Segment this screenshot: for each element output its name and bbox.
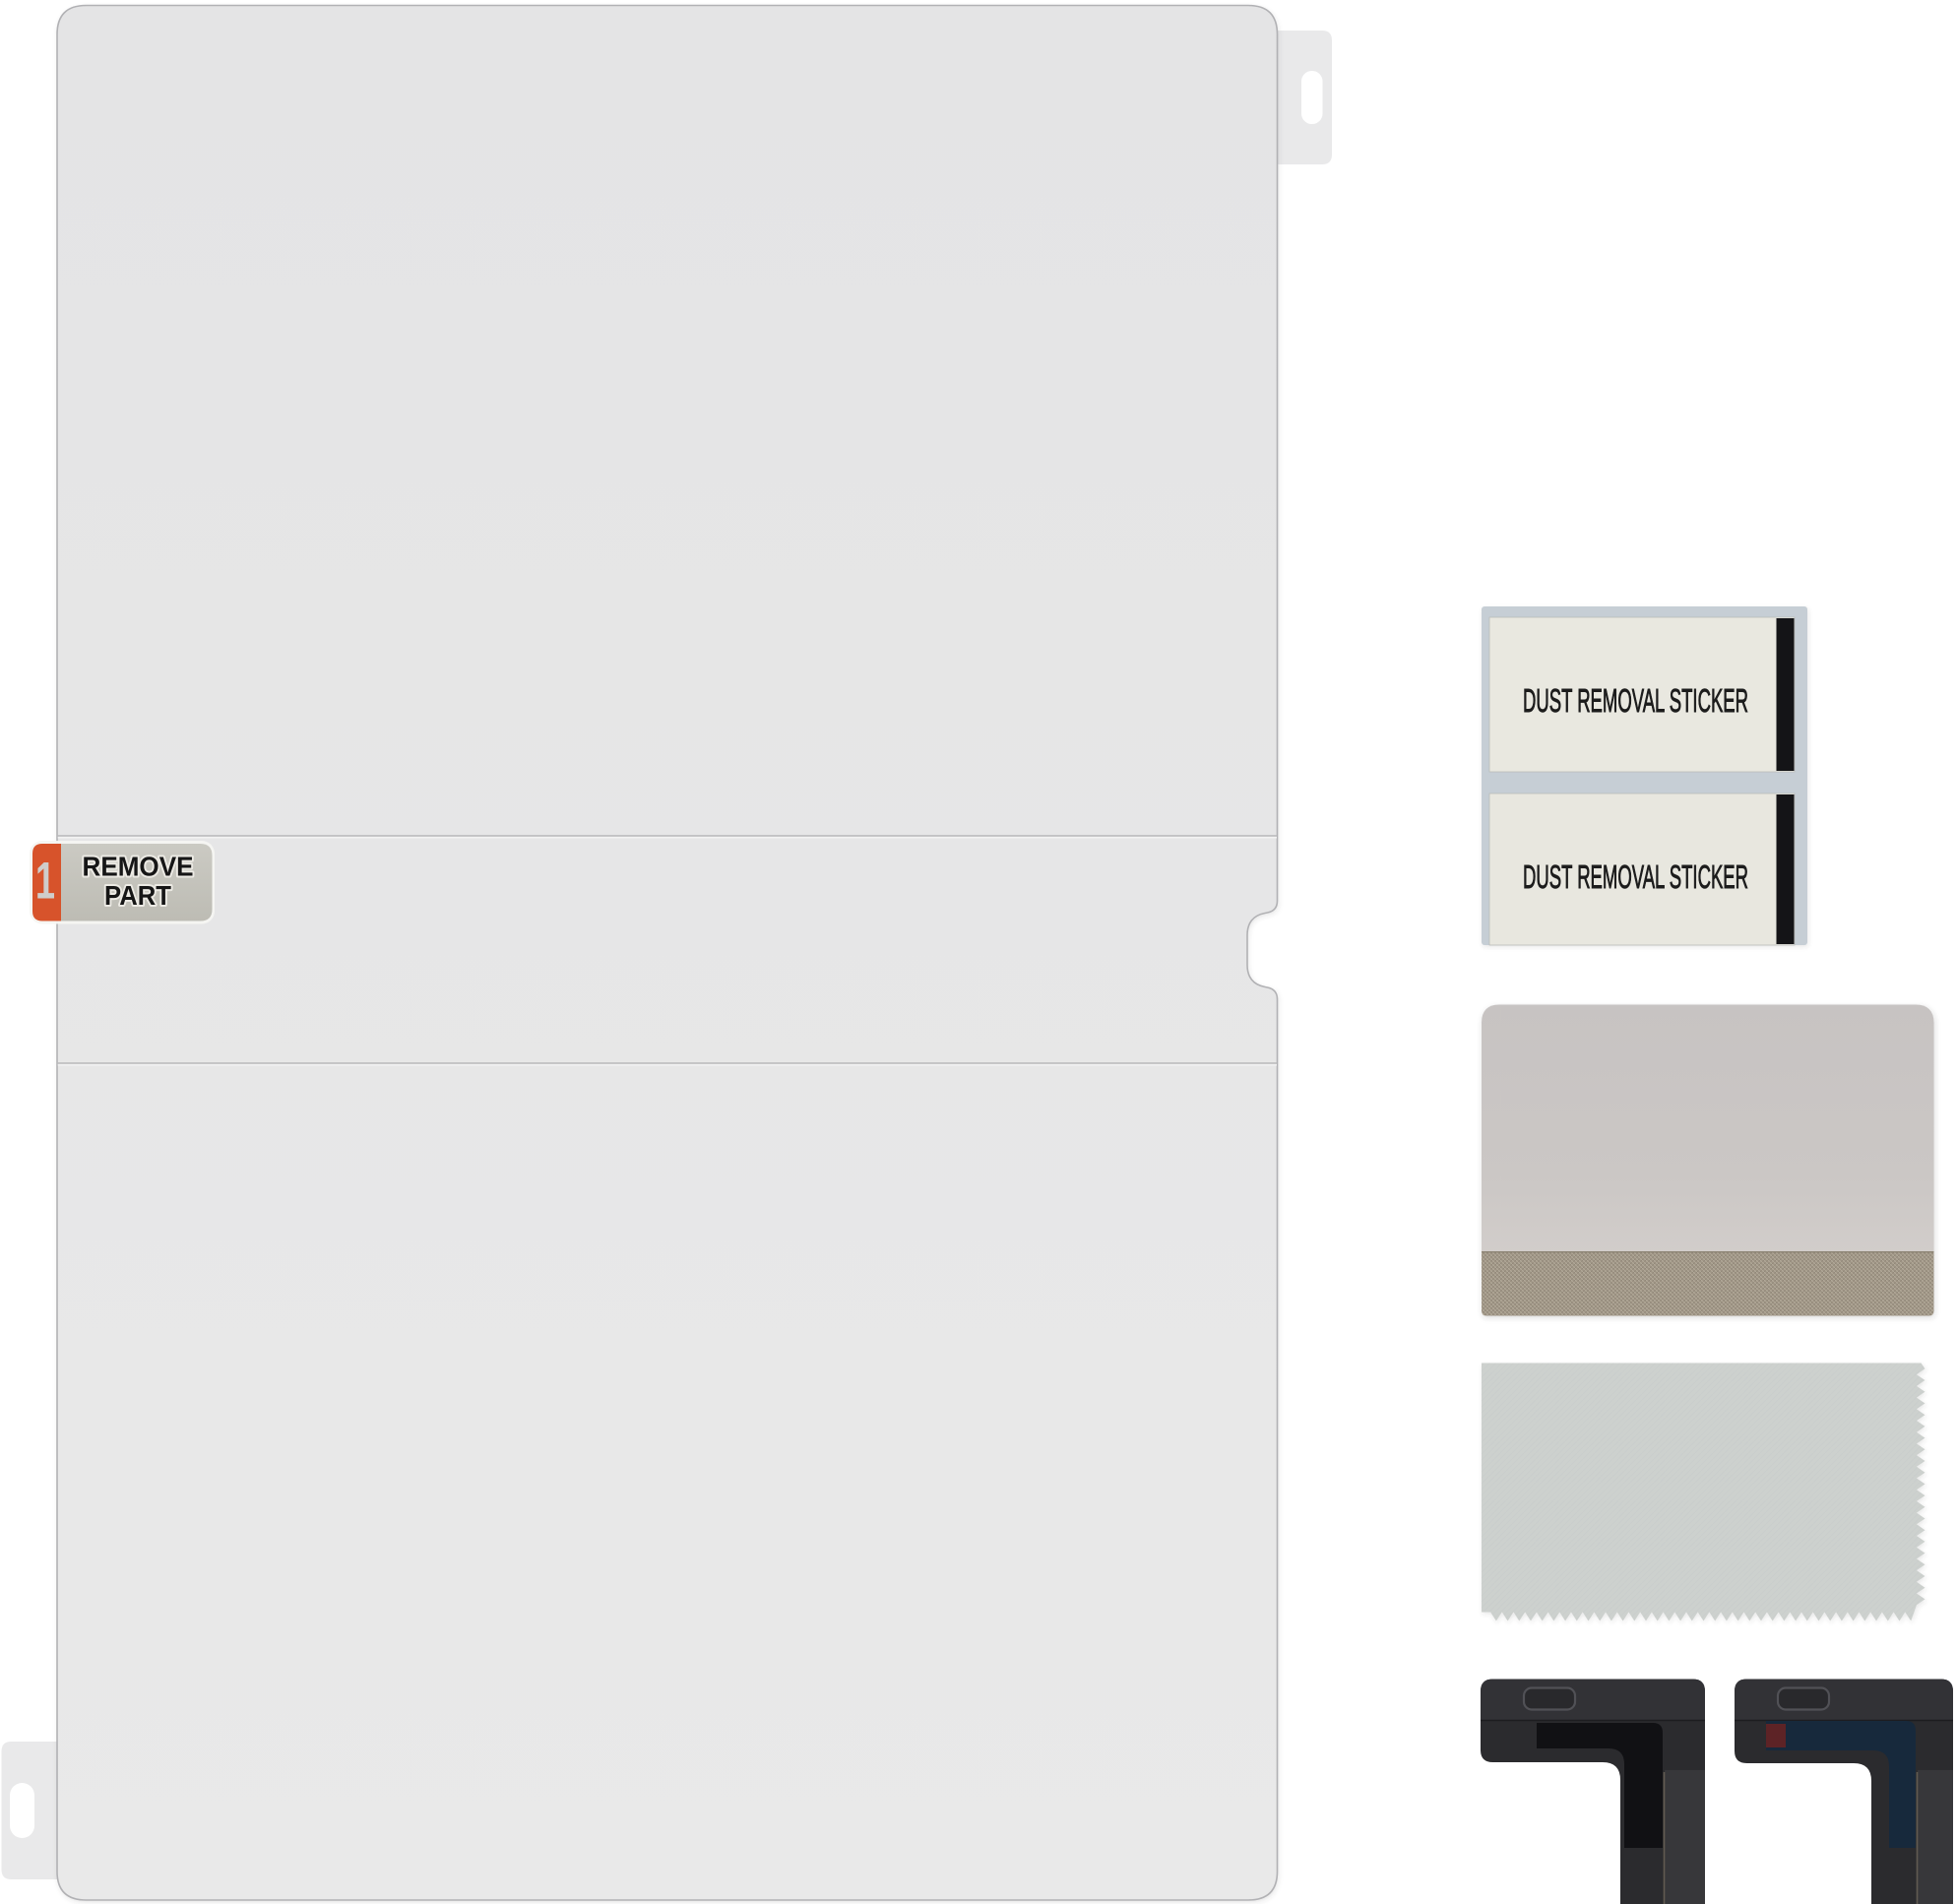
svg-text:REMOVE: REMOVE (83, 852, 194, 882)
svg-text:DUST REMOVAL STICKER: DUST REMOVAL STICKER (1523, 682, 1748, 719)
svg-text:1: 1 (35, 853, 55, 911)
svg-text:PART: PART (104, 880, 171, 911)
svg-text:DUST REMOVAL STICKER: DUST REMOVAL STICKER (1523, 858, 1748, 895)
